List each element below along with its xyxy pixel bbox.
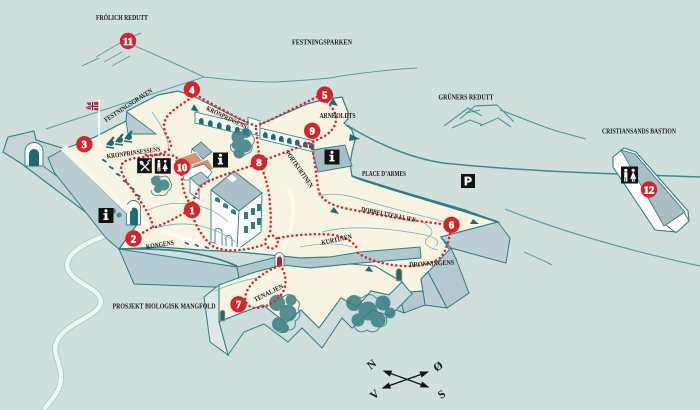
svg-text:10: 10 [177, 163, 188, 174]
svg-text:ARNHOLDTS: ARNHOLDTS [320, 113, 356, 120]
svg-text:11: 11 [123, 37, 133, 48]
svg-text:GRÜNERS REDUTT: GRÜNERS REDUTT [439, 95, 494, 102]
svg-text:7: 7 [236, 300, 241, 311]
svg-text:PLACE D’ARMES: PLACE D’ARMES [362, 171, 406, 178]
svg-text:4: 4 [189, 85, 195, 96]
svg-text:1: 1 [189, 206, 194, 217]
svg-text:12: 12 [644, 185, 655, 196]
svg-text:8: 8 [256, 158, 261, 169]
svg-text:5: 5 [322, 90, 327, 101]
svg-text:CRISTIANSANDS BASTION: CRISTIANSANDS BASTION [602, 129, 676, 136]
svg-text:6: 6 [449, 221, 454, 232]
svg-text:3: 3 [82, 140, 87, 151]
svg-text:FESTNINGSPARKEN: FESTNINGSPARKEN [292, 40, 352, 47]
svg-text:FRÖLICH REDUTT: FRÖLICH REDUTT [96, 15, 148, 22]
svg-text:9: 9 [310, 127, 315, 138]
svg-text:2: 2 [131, 234, 136, 245]
svg-text:PROSJEKT BIOLOGISK MANGFOLD: PROSJEKT BIOLOGISK MANGFOLD [113, 304, 216, 311]
